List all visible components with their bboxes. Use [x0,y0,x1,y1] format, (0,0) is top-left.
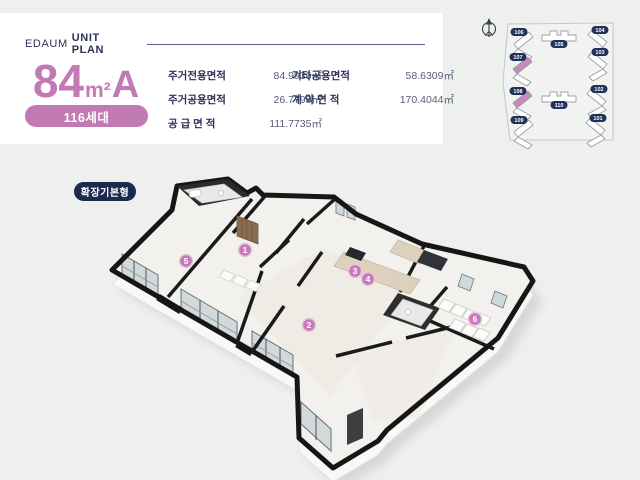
floor-plan: 123456 [0,0,640,480]
svg-text:2: 2 [307,320,312,330]
svg-text:3: 3 [353,266,358,276]
svg-text:4: 4 [366,274,371,284]
floor-marker-4: 4 [362,273,375,286]
svg-text:6: 6 [473,314,478,324]
floor-marker-3: 3 [349,265,362,278]
floor-marker-2: 2 [303,319,316,332]
svg-text:1: 1 [243,245,248,255]
floor-marker-1: 1 [239,244,252,257]
floor-marker-5: 5 [180,255,193,268]
floor-marker-6: 6 [469,313,482,326]
svg-text:5: 5 [184,256,189,266]
